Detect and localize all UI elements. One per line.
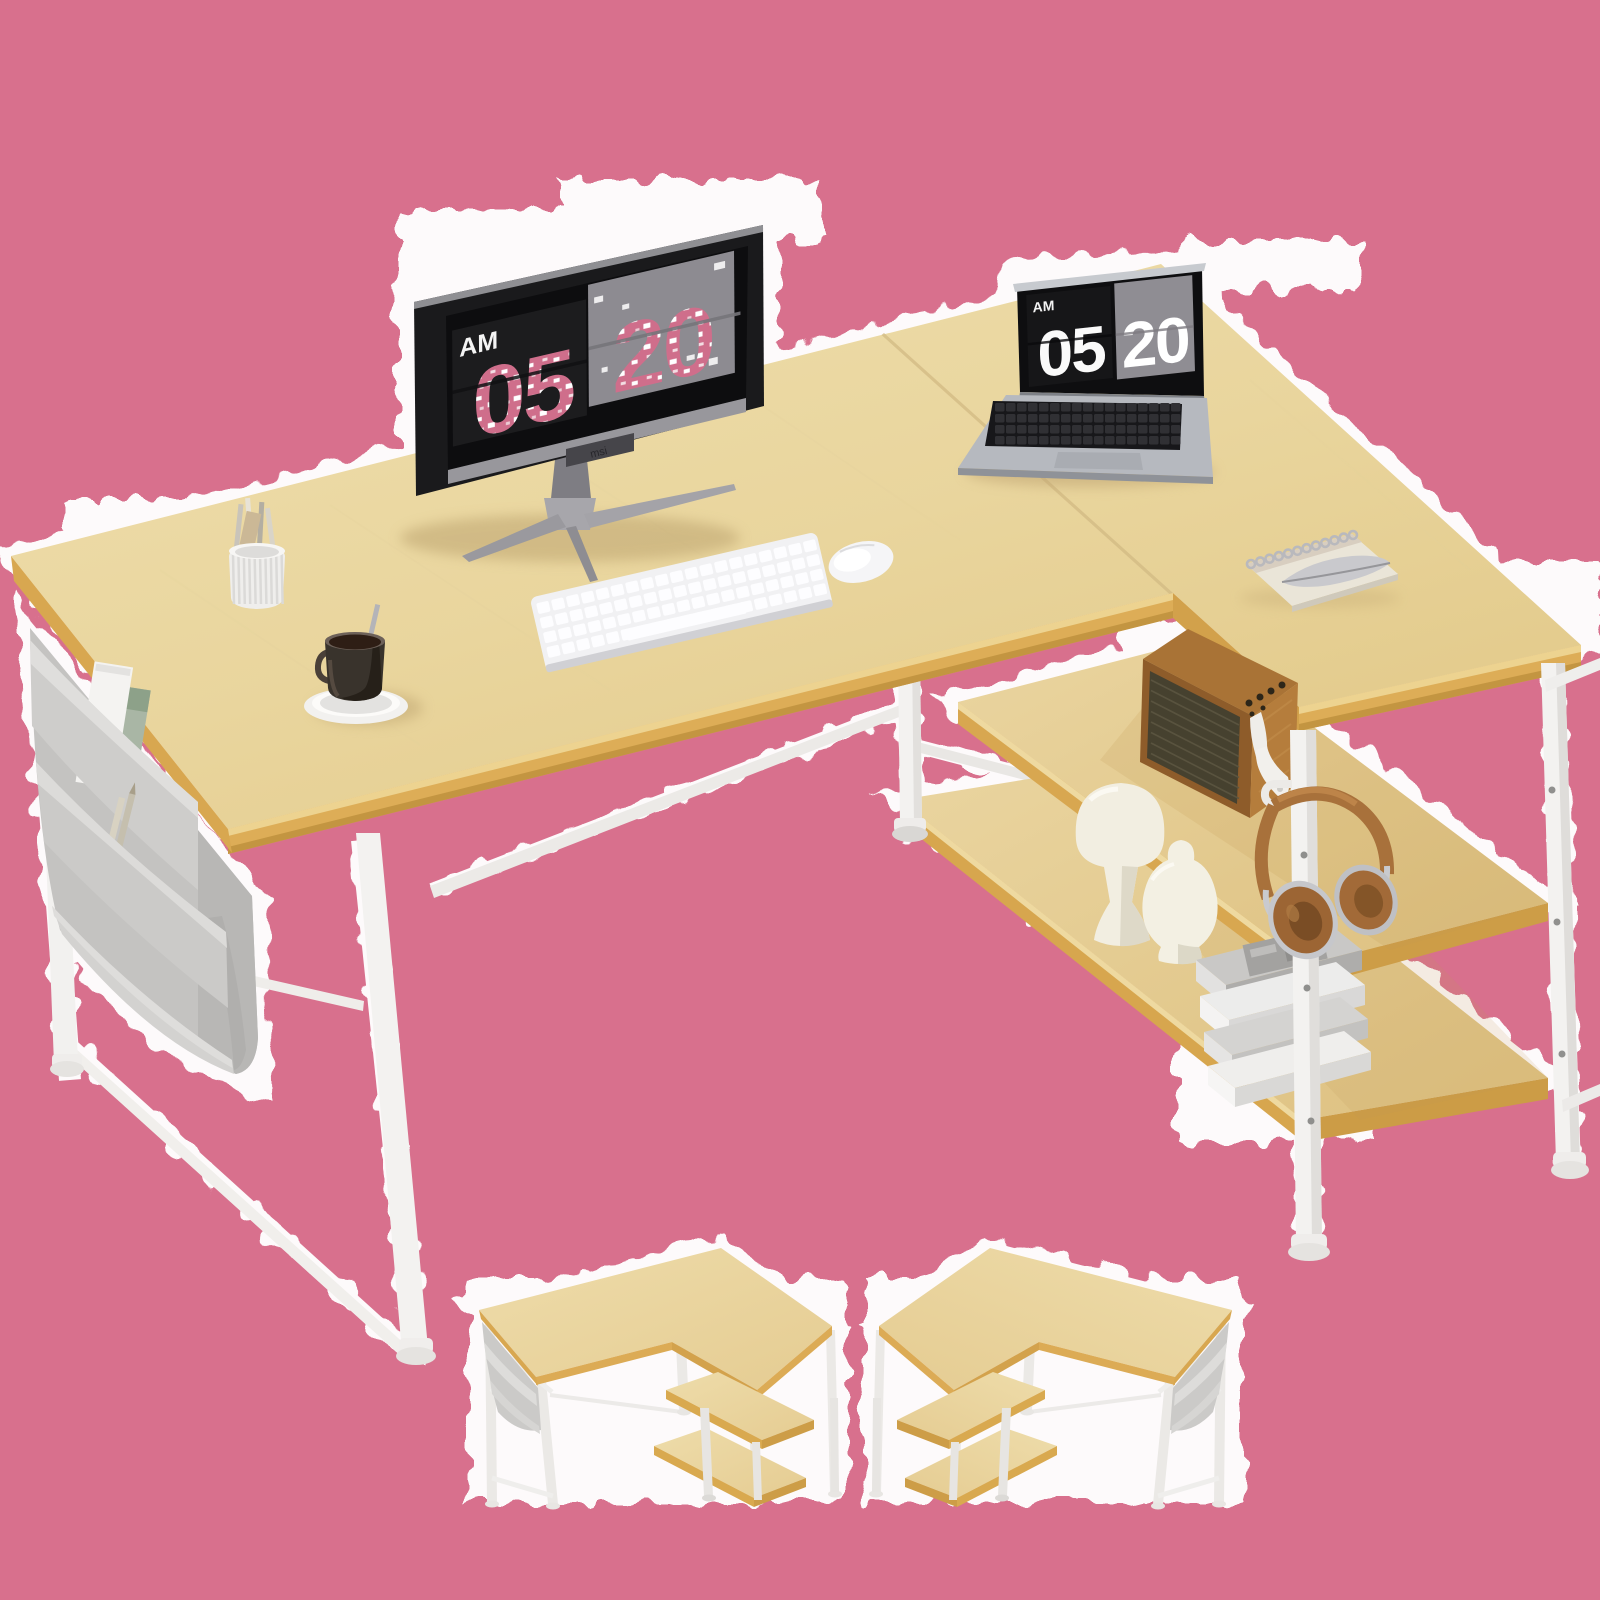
svg-text:AM: AM [1032, 297, 1054, 315]
svg-text:20: 20 [1120, 303, 1190, 382]
svg-text:05: 05 [1036, 312, 1106, 391]
